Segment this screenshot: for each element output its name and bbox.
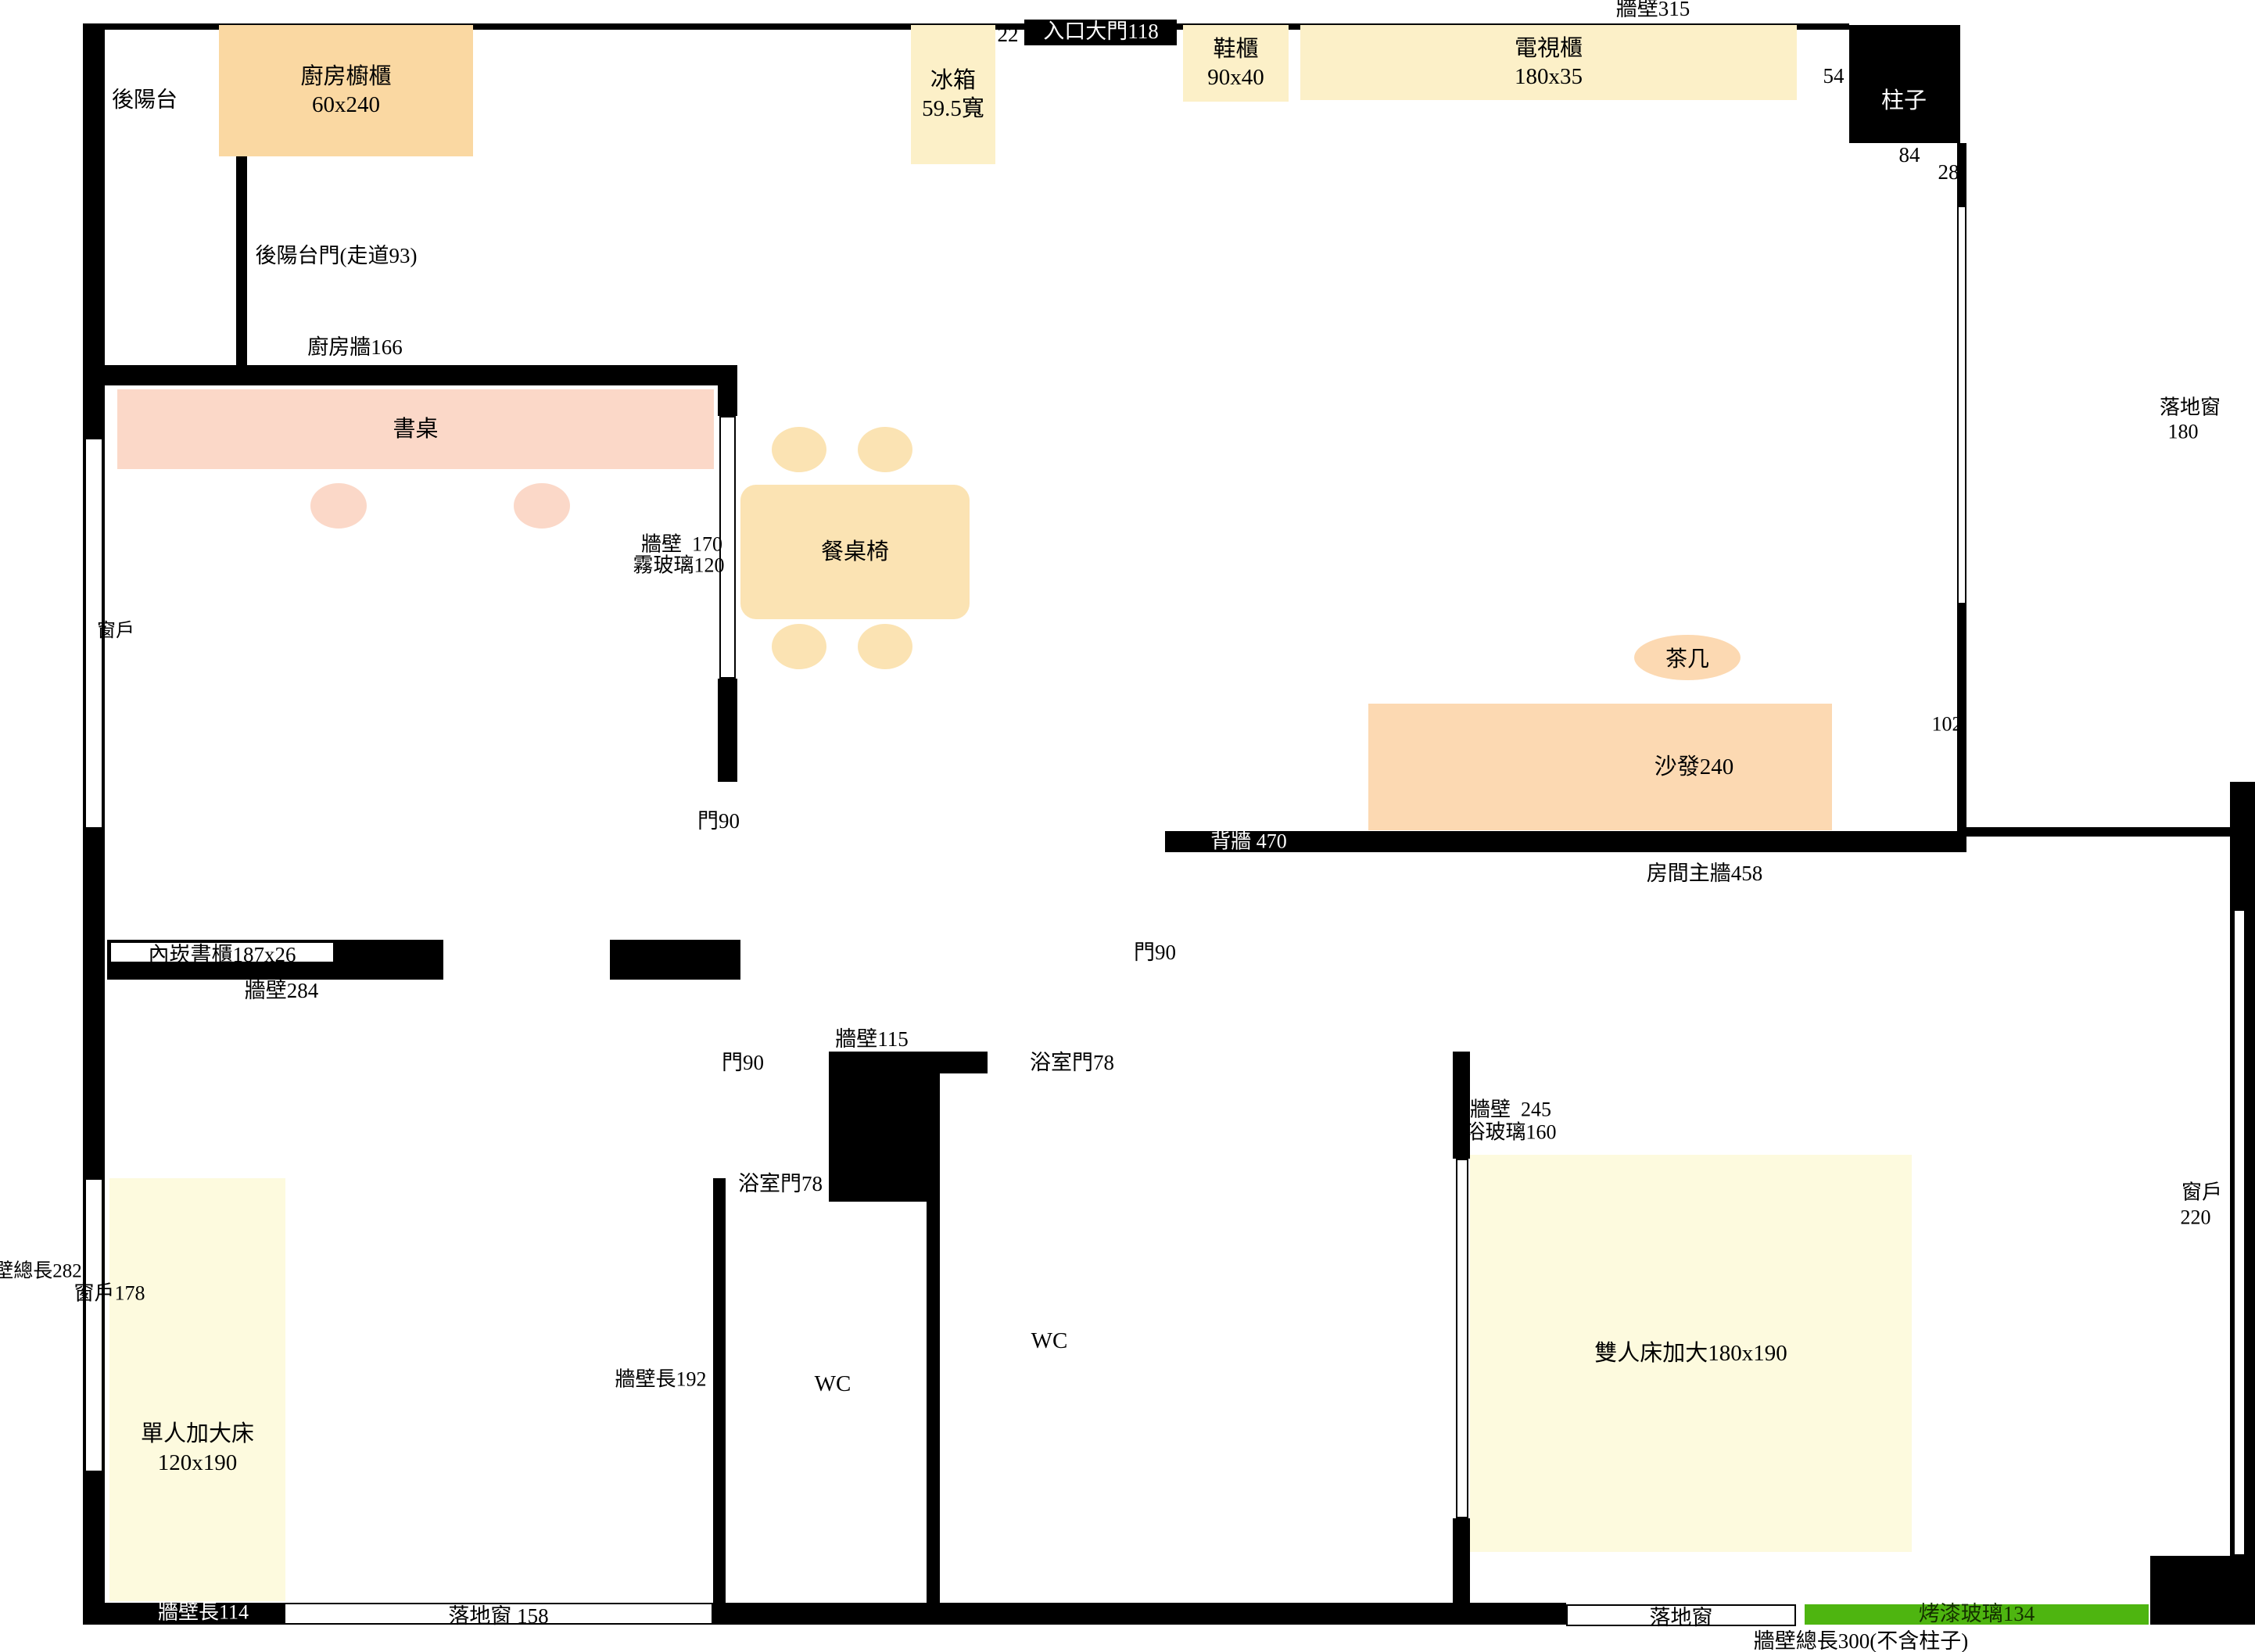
dining-table-label: 餐桌椅: [821, 538, 889, 566]
bottom-window-left: 落地窗 158: [284, 1603, 713, 1625]
dim-22: 22: [998, 23, 1019, 47]
bookshelf-inset-label: 內崁書櫃187x26: [149, 937, 296, 968]
sofa-label: 沙發240: [1655, 753, 1734, 781]
wall-114-label: 牆壁長114: [158, 1602, 249, 1625]
sofa: 沙發240: [1368, 704, 1832, 830]
back-wall-extension: [1966, 827, 2230, 837]
dim-28: 28: [1938, 161, 1959, 185]
dining-chair-1: [772, 427, 826, 472]
tv-cabinet: 電視櫃180x35: [1300, 25, 1797, 100]
wc-right-label: WC: [1031, 1329, 1068, 1354]
bed-double-label: 雙人床加大180x190: [1594, 1339, 1787, 1367]
entry-door-label: 入口大門118: [1043, 20, 1159, 44]
shower-glass-label: 浴玻璃160: [1464, 1122, 1556, 1145]
bed-single: 單人加大床120x190: [109, 1178, 285, 1601]
desk: 書桌: [117, 389, 714, 469]
dining-chair-3: [772, 624, 826, 669]
dining-table: 餐桌椅: [740, 485, 970, 619]
living-window-label-1: 落地窗: [2160, 397, 2221, 420]
dim-54: 54: [1823, 65, 1845, 88]
wall-total-282-label: 牆壁總長282: [0, 1260, 82, 1282]
living-window-label-2: 180: [2168, 421, 2199, 444]
dim-wall-315: 牆壁315: [1616, 0, 1690, 21]
coffee-table: 茶几: [1634, 635, 1741, 680]
frosted-wall-lower: [718, 679, 737, 782]
bath-door-right-label: 浴室門78: [1030, 1052, 1114, 1075]
wall-284-label: 牆壁284: [245, 980, 319, 1003]
shower-glass-panel: [1456, 1159, 1468, 1518]
frosted-wall-dim-2: 霧玻璃120: [633, 555, 724, 578]
study-window-label: 窗戶: [97, 621, 134, 641]
bottom-wall-middle: [713, 1603, 1566, 1625]
tv-cabinet-label: 電視櫃180x35: [1515, 34, 1583, 91]
bed-double: 雙人床加大180x190: [1470, 1155, 1912, 1552]
kitchen-cabinet-label: 廚房櫥櫃60x240: [300, 63, 391, 120]
kitchen-wall-label: 廚房牆166: [307, 336, 403, 360]
door90-corridor: 門90: [722, 1052, 764, 1075]
bath-door-left-label: 浴室門78: [738, 1173, 823, 1196]
painted-glass-bar: 烤漆玻璃134: [1805, 1604, 2149, 1625]
back-wall-label: 背牆 470: [1210, 831, 1287, 854]
living-right-window: [1957, 206, 1966, 604]
wall-192-label: 牆壁長192: [615, 1369, 706, 1392]
balcony-divider-wall: [236, 156, 247, 365]
wall-245-label: 牆壁 245: [1470, 1099, 1551, 1122]
column-label: 柱子: [1881, 89, 1927, 114]
bookshelf-inset: 內崁書櫃187x26: [109, 941, 335, 963]
corner-block: [2150, 1556, 2235, 1625]
frosted-wall-upper: [718, 365, 737, 416]
bedroom2-window-label-1: 窗戶: [2182, 1182, 2222, 1205]
shoe-cabinet-label: 鞋櫃90x40: [1207, 35, 1264, 92]
desk-chair-2: [514, 483, 570, 529]
bedroom2-right-window: [2233, 909, 2246, 1556]
desk-chair-1: [310, 483, 367, 529]
floor-plan: 內崁書櫃187x26落地窗 158落地窗 廚房櫥櫃60x240冰箱59.5寬鞋櫃…: [0, 0, 2255, 1652]
dim-102: 102: [1932, 714, 1963, 736]
wc-left-label: WC: [815, 1372, 851, 1397]
fridge-label: 冰箱59.5寬: [922, 66, 984, 124]
door90-study: 門90: [697, 810, 740, 833]
dining-chair-2: [858, 427, 912, 472]
bath-top-extension: [940, 1052, 988, 1073]
bedroom2-window-label-2: 220: [2181, 1207, 2211, 1230]
wall-total-300-label: 牆壁總長300(不含柱子): [1754, 1630, 1968, 1652]
bedroom1-window-label: 窗戶178: [73, 1283, 145, 1306]
study-top-wall: [92, 365, 737, 385]
bath-middle-wall: [927, 1073, 940, 1625]
bedroom1-left-window: [84, 1178, 103, 1472]
bed-single-label: 單人加大床120x190: [109, 1420, 285, 1477]
wall-115-label: 牆壁115: [835, 1028, 909, 1052]
frosted-wall-dim-1: 牆壁 170: [641, 534, 722, 557]
door90-bedroom2: 門90: [1134, 941, 1176, 965]
balcony-label: 後陽台: [112, 89, 177, 113]
column: [1849, 25, 1960, 143]
shelf-band-right: [610, 940, 740, 980]
bottom-window-left-label: 落地窗 158: [448, 1599, 548, 1629]
desk-label: 書桌: [393, 415, 438, 443]
kitchen-cabinet: 廚房櫥櫃60x240: [219, 25, 473, 156]
room-main-wall-label: 房間主牆458: [1647, 862, 1763, 886]
coffee-table-label: 茶几: [1665, 642, 1709, 673]
bottom-window-bedroom2: 落地窗: [1566, 1604, 1796, 1626]
dining-chair-4: [858, 624, 912, 669]
shoe-cabinet: 鞋櫃90x40: [1183, 25, 1289, 102]
balcony-door-label: 後陽台門(走道93): [256, 245, 418, 268]
fridge: 冰箱59.5寬: [911, 25, 995, 164]
corridor-wall: [713, 1178, 726, 1625]
dim-84: 84: [1899, 144, 1920, 167]
bottom-window-bedroom2-label: 落地窗: [1650, 1600, 1713, 1631]
painted-glass-bar-label: 烤漆玻璃134: [1919, 1601, 2035, 1628]
bath-top-block: [829, 1052, 940, 1202]
